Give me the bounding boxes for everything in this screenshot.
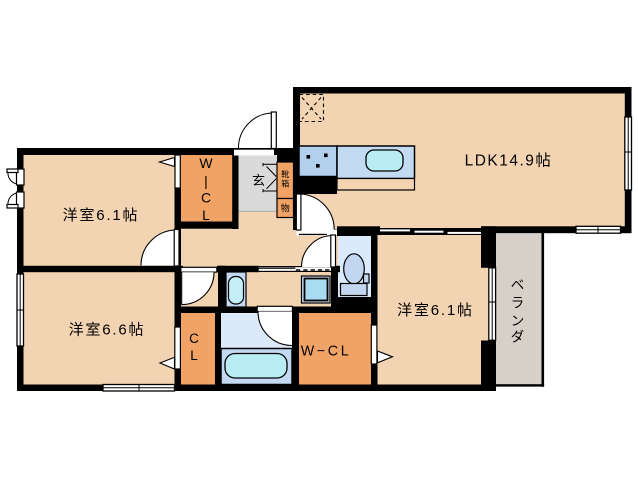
svg-text:L: L [202, 207, 210, 223]
svg-text:洋室6.1帖: 洋室6.1帖 [63, 207, 140, 224]
svg-text:物: 物 [281, 203, 290, 214]
svg-text:C: C [189, 331, 199, 346]
svg-text:箱: 箱 [281, 179, 289, 189]
svg-text:W: W [199, 155, 213, 171]
svg-text:洋室6.1帖: 洋室6.1帖 [397, 302, 474, 319]
svg-text:|: | [204, 173, 208, 189]
svg-text:ベ: ベ [511, 277, 525, 292]
svg-text:靴: 靴 [281, 169, 289, 179]
svg-text:ン: ン [511, 313, 525, 328]
svg-text:玄: 玄 [252, 173, 265, 188]
svg-text:洋室6.6帖: 洋室6.6帖 [69, 322, 146, 339]
svg-text:ラ: ラ [511, 295, 525, 310]
svg-text:LDK14.9帖: LDK14.9帖 [465, 152, 553, 170]
svg-text:C: C [201, 190, 211, 206]
svg-text:W−CL: W−CL [301, 343, 352, 359]
svg-text:ダ: ダ [511, 329, 525, 344]
svg-text:L: L [190, 348, 198, 363]
